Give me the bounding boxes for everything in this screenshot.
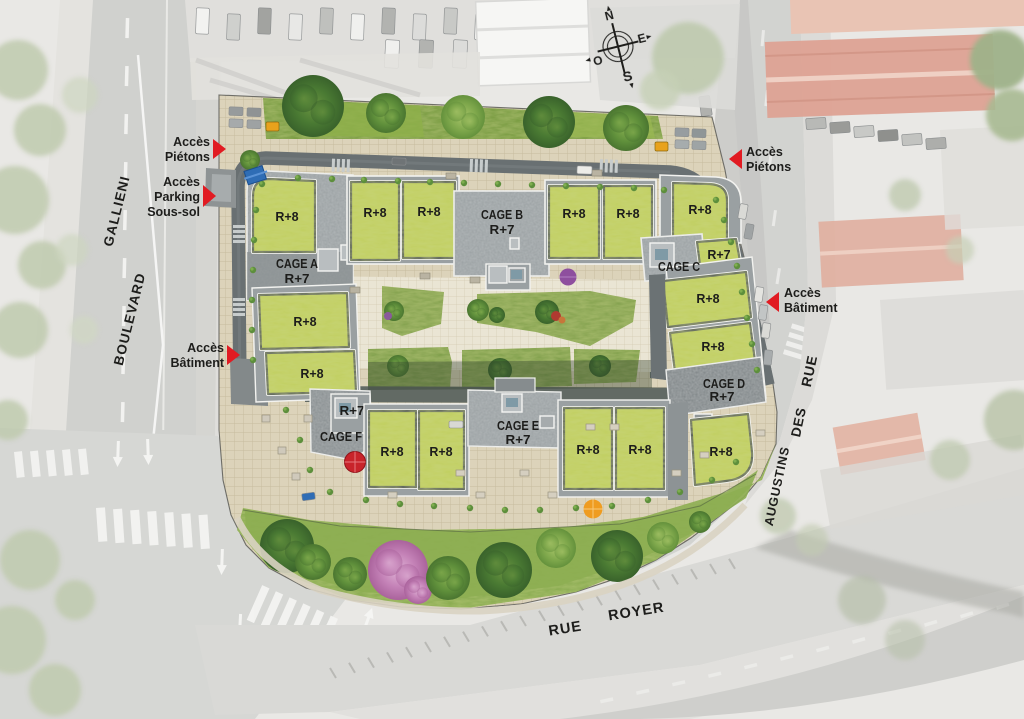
svg-text:CAGE C: CAGE C bbox=[658, 259, 701, 274]
svg-text:R+8: R+8 bbox=[275, 210, 298, 224]
svg-text:R+8: R+8 bbox=[616, 207, 639, 221]
svg-text:R+8: R+8 bbox=[709, 445, 732, 459]
svg-text:CAGE B: CAGE B bbox=[481, 207, 523, 222]
svg-text:R+8: R+8 bbox=[701, 340, 724, 354]
svg-text:R+7: R+7 bbox=[340, 403, 365, 418]
svg-text:R+8: R+8 bbox=[628, 443, 651, 457]
svg-text:R+8: R+8 bbox=[429, 445, 452, 459]
svg-text:Piétons: Piétons bbox=[746, 160, 791, 174]
svg-text:R+8: R+8 bbox=[293, 315, 316, 329]
svg-text:CAGE F: CAGE F bbox=[320, 429, 362, 444]
svg-text:R+7: R+7 bbox=[490, 222, 515, 237]
svg-text:Accès: Accès bbox=[173, 135, 210, 149]
svg-text:Accès: Accès bbox=[187, 341, 224, 355]
svg-text:R+8: R+8 bbox=[300, 367, 323, 381]
svg-text:Bâtiment: Bâtiment bbox=[171, 356, 225, 370]
svg-text:R+8: R+8 bbox=[363, 206, 386, 220]
svg-text:CAGE E: CAGE E bbox=[497, 418, 539, 433]
svg-text:R+7: R+7 bbox=[285, 271, 310, 286]
svg-text:R+7: R+7 bbox=[710, 389, 735, 404]
svg-text:R+8: R+8 bbox=[562, 207, 585, 221]
svg-text:CAGE A: CAGE A bbox=[276, 256, 319, 271]
svg-text:Bâtiment: Bâtiment bbox=[784, 301, 838, 315]
svg-text:R+8: R+8 bbox=[417, 205, 440, 219]
svg-text:R+8: R+8 bbox=[576, 443, 599, 457]
svg-text:Piétons: Piétons bbox=[165, 150, 210, 164]
svg-text:Accès: Accès bbox=[746, 145, 783, 159]
svg-text:Accès: Accès bbox=[163, 175, 200, 189]
svg-text:Accès: Accès bbox=[784, 286, 821, 300]
svg-text:Sous-sol: Sous-sol bbox=[147, 205, 200, 219]
svg-text:R+7: R+7 bbox=[506, 432, 531, 447]
svg-text:Parking: Parking bbox=[154, 190, 200, 204]
svg-text:R+8: R+8 bbox=[688, 203, 711, 217]
svg-text:R+8: R+8 bbox=[696, 292, 719, 306]
svg-text:R+8: R+8 bbox=[380, 445, 403, 459]
